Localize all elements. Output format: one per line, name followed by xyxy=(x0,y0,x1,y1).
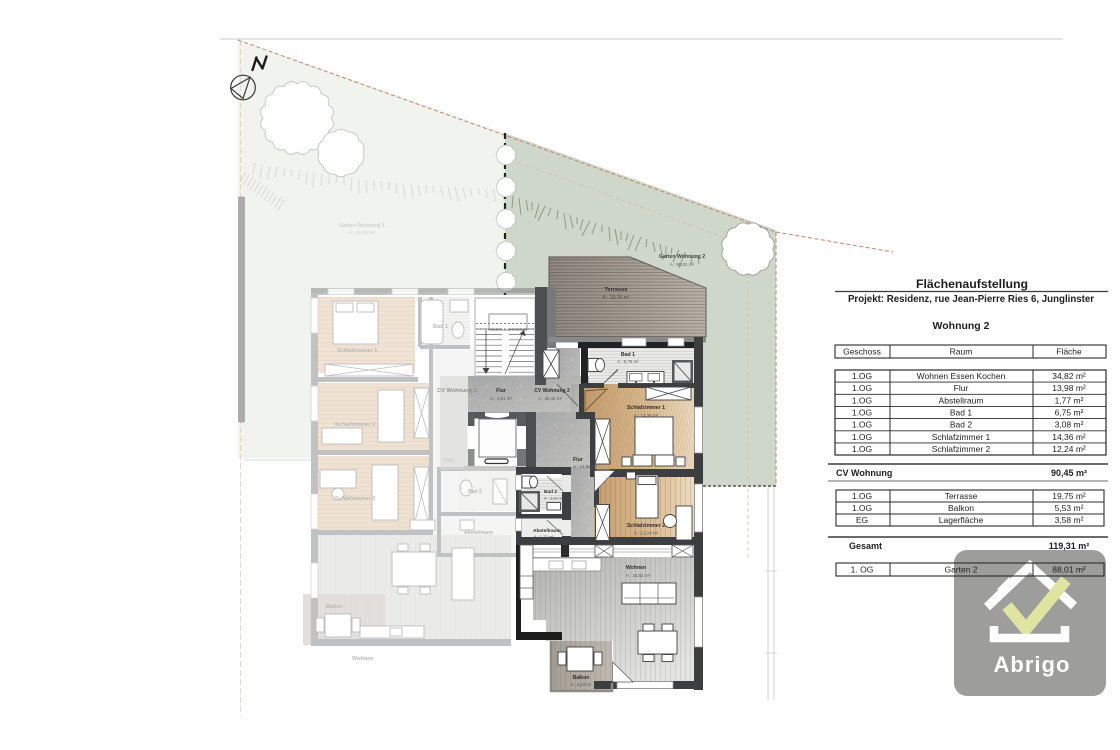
svg-text:Schlafzimmer 1: Schlafzimmer 1 xyxy=(932,432,991,442)
svg-text:Abstellraum: Abstellraum xyxy=(464,530,493,536)
svg-text:Bad 1: Bad 1 xyxy=(621,352,635,358)
svg-text:A : 13,98 m²: A : 13,98 m² xyxy=(573,464,598,469)
svg-text:1.OG: 1.OG xyxy=(852,432,872,442)
svg-text:Garten Wohnung 2: Garten Wohnung 2 xyxy=(659,254,705,260)
svg-text:Wohnung 2: Wohnung 2 xyxy=(933,320,990,332)
svg-text:1,77 m²: 1,77 m² xyxy=(1055,395,1084,405)
svg-text:6,75 m²: 6,75 m² xyxy=(1055,407,1084,417)
svg-text:1.OG: 1.OG xyxy=(852,371,872,381)
svg-text:Flächenaufstellung: Flächenaufstellung xyxy=(916,277,1028,291)
svg-text:EG: EG xyxy=(856,515,868,525)
svg-text:Balkon: Balkon xyxy=(573,675,590,681)
svg-text:A : 4,61 m²: A : 4,61 m² xyxy=(490,396,512,401)
svg-text:1. OG: 1. OG xyxy=(851,565,874,575)
svg-text:Lagerfläche: Lagerfläche xyxy=(939,515,984,525)
svg-text:Balkon: Balkon xyxy=(948,503,974,513)
svg-text:88,01 m²: 88,01 m² xyxy=(1052,565,1086,575)
svg-text:Bad 1: Bad 1 xyxy=(433,324,448,330)
svg-text:Wohnen: Wohnen xyxy=(352,656,374,662)
svg-text:5,53 m²: 5,53 m² xyxy=(1055,503,1084,513)
svg-text:A : 6,75 m²: A : 6,75 m² xyxy=(617,359,639,364)
svg-text:1.OG: 1.OG xyxy=(852,407,872,417)
svg-text:Abstellraum: Abstellraum xyxy=(939,395,984,405)
svg-text:Balkon: Balkon xyxy=(326,604,343,610)
svg-text:12,24 m²: 12,24 m² xyxy=(1052,444,1086,454)
svg-text:A : 3,08 m²: A : 3,08 m² xyxy=(544,496,564,501)
svg-text:Bad 2: Bad 2 xyxy=(950,420,972,430)
svg-text:Schlafzimmer 2: Schlafzimmer 2 xyxy=(932,444,991,454)
svg-text:90,45 m²: 90,45 m² xyxy=(1051,468,1087,478)
svg-text:Garten 2: Garten 2 xyxy=(944,565,977,575)
svg-text:3,58 m²: 3,58 m² xyxy=(1055,515,1084,525)
svg-text:14,36 m²: 14,36 m² xyxy=(1052,432,1086,442)
svg-text:1.OG: 1.OG xyxy=(852,491,872,501)
svg-text:CV Wohnung: CV Wohnung xyxy=(836,468,892,478)
svg-text:Schlafzimmer 2: Schlafzimmer 2 xyxy=(627,523,665,529)
svg-text:A : 12,24 m²: A : 12,24 m² xyxy=(634,531,659,536)
svg-text:Wohnen Essen Kochen: Wohnen Essen Kochen xyxy=(917,371,1006,381)
svg-text:A : 19,75 m²: A : 19,75 m² xyxy=(603,295,630,301)
svg-text:19,75 m²: 19,75 m² xyxy=(1052,491,1086,501)
svg-text:Abrigo: Abrigo xyxy=(994,652,1071,677)
svg-text:A : 36,42 m²: A : 36,42 m² xyxy=(538,396,563,401)
svg-text:1.OG: 1.OG xyxy=(852,395,872,405)
svg-text:A : 88,01 m²: A : 88,01 m² xyxy=(670,262,695,267)
svg-text:Flur: Flur xyxy=(496,388,506,394)
svg-text:Gesamt: Gesamt xyxy=(849,541,882,551)
svg-text:Flur: Flur xyxy=(954,383,969,393)
svg-text:A : 131,92 m²: A : 131,92 m² xyxy=(349,230,376,235)
svg-text:Garten Wohnung 1: Garten Wohnung 1 xyxy=(339,223,385,229)
svg-text:Bad 1: Bad 1 xyxy=(950,407,972,417)
svg-text:CV Wohnung 2: CV Wohnung 2 xyxy=(534,388,570,394)
svg-text:A : 1,77 m²: A : 1,77 m² xyxy=(534,534,554,539)
svg-text:1.OG: 1.OG xyxy=(852,383,872,393)
svg-text:Schlafzimmer 2: Schlafzimmer 2 xyxy=(335,422,375,428)
svg-text:A : 14,36 m²: A : 14,36 m² xyxy=(634,413,659,418)
svg-text:Schlafzimmer 1: Schlafzimmer 1 xyxy=(627,405,665,411)
svg-text:A : 5,53 m²: A : 5,53 m² xyxy=(571,682,592,687)
svg-text:3,08 m²: 3,08 m² xyxy=(1055,420,1084,430)
svg-text:Projekt: Residenz, rue Jean-Pi: Projekt: Residenz, rue Jean-Pierre Ries … xyxy=(848,294,1094,305)
svg-text:Raum: Raum xyxy=(950,347,973,357)
svg-text:119,31 m²: 119,31 m² xyxy=(1049,541,1090,551)
svg-text:Schlafzimmer 1: Schlafzimmer 1 xyxy=(337,348,377,354)
svg-text:CV Wohnung 1: CV Wohnung 1 xyxy=(437,388,477,394)
svg-text:1.OG: 1.OG xyxy=(852,420,872,430)
svg-text:A : 34,82 m²: A : 34,82 m² xyxy=(626,573,651,578)
svg-text:Terrasse: Terrasse xyxy=(945,491,978,501)
svg-text:1.OG: 1.OG xyxy=(852,444,872,454)
svg-text:Fläche: Fläche xyxy=(1056,347,1082,357)
svg-text:Bad 2: Bad 2 xyxy=(468,489,482,495)
svg-text:Wohnen: Wohnen xyxy=(626,565,646,571)
svg-text:13,98 m²: 13,98 m² xyxy=(1052,383,1086,393)
svg-text:Geschoss: Geschoss xyxy=(843,347,881,357)
svg-text:1.OG: 1.OG xyxy=(852,503,872,513)
svg-text:Schlafzimmer 3: Schlafzimmer 3 xyxy=(335,496,375,502)
svg-text:34,82 m²: 34,82 m² xyxy=(1052,371,1086,381)
svg-text:Flur: Flur xyxy=(573,457,583,463)
svg-text:Bad 2: Bad 2 xyxy=(544,489,557,495)
svg-text:Terrasse: Terrasse xyxy=(605,287,628,293)
